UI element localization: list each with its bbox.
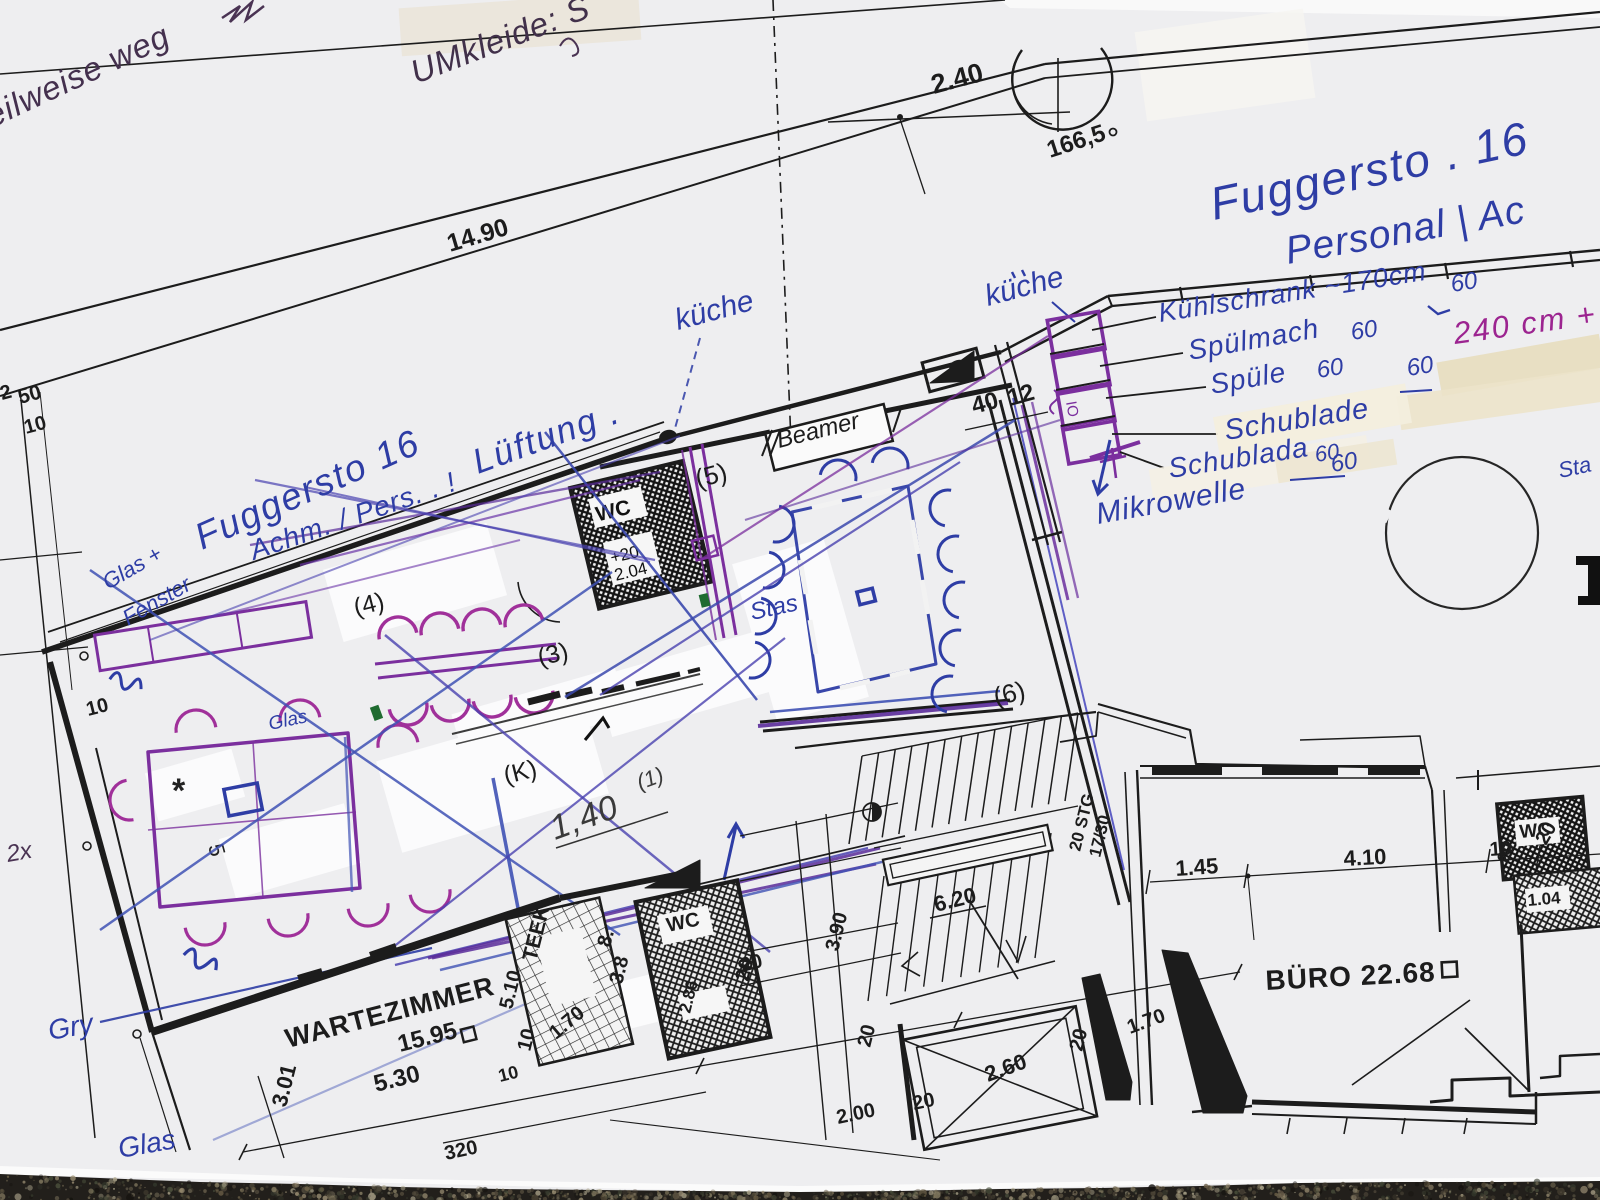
svg-text:1.45: 1.45 — [1175, 853, 1219, 881]
svg-text:10: 10 — [1489, 837, 1513, 860]
svg-text:60: 60 — [1329, 447, 1360, 478]
svg-text:60: 60 — [1315, 353, 1346, 384]
svg-text:4.10: 4.10 — [1343, 844, 1387, 871]
svg-text:IO: IO — [1062, 400, 1081, 419]
svg-text:*: * — [172, 772, 186, 810]
svg-text:60: 60 — [1349, 315, 1380, 346]
svg-text:60: 60 — [1449, 267, 1480, 298]
svg-text:60: 60 — [1405, 351, 1436, 382]
svg-text:1.04: 1.04 — [1527, 888, 1562, 910]
